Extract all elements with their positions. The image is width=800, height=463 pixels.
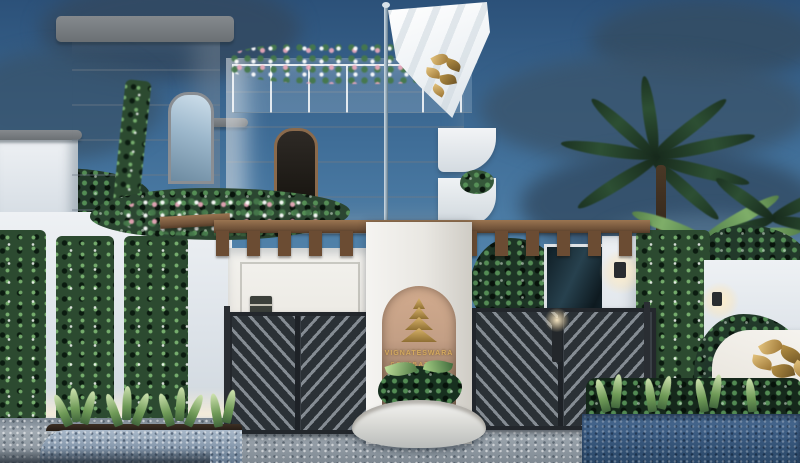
tower-arched-window — [168, 92, 214, 184]
wall-lamp — [712, 292, 722, 306]
far-left-wall-cap — [0, 130, 82, 140]
architectural-render: VIGNATESWARA COIMBATORE WHISP OF EL — [0, 0, 800, 463]
wall-lamp — [614, 262, 626, 278]
left-driveway-gate — [228, 312, 374, 434]
flag-pole-finial — [382, 2, 390, 8]
entrance-sign-line1: VIGNATESWARA — [385, 350, 454, 357]
tower-roof — [56, 16, 234, 42]
agave-plants — [596, 374, 796, 414]
agave-plants — [56, 386, 238, 430]
bollard-light-glow — [544, 308, 570, 332]
vertical-garden-panel — [0, 230, 46, 422]
right-blue-planter — [582, 414, 800, 463]
flag-pole — [384, 6, 388, 230]
curb-shadow — [0, 448, 210, 463]
